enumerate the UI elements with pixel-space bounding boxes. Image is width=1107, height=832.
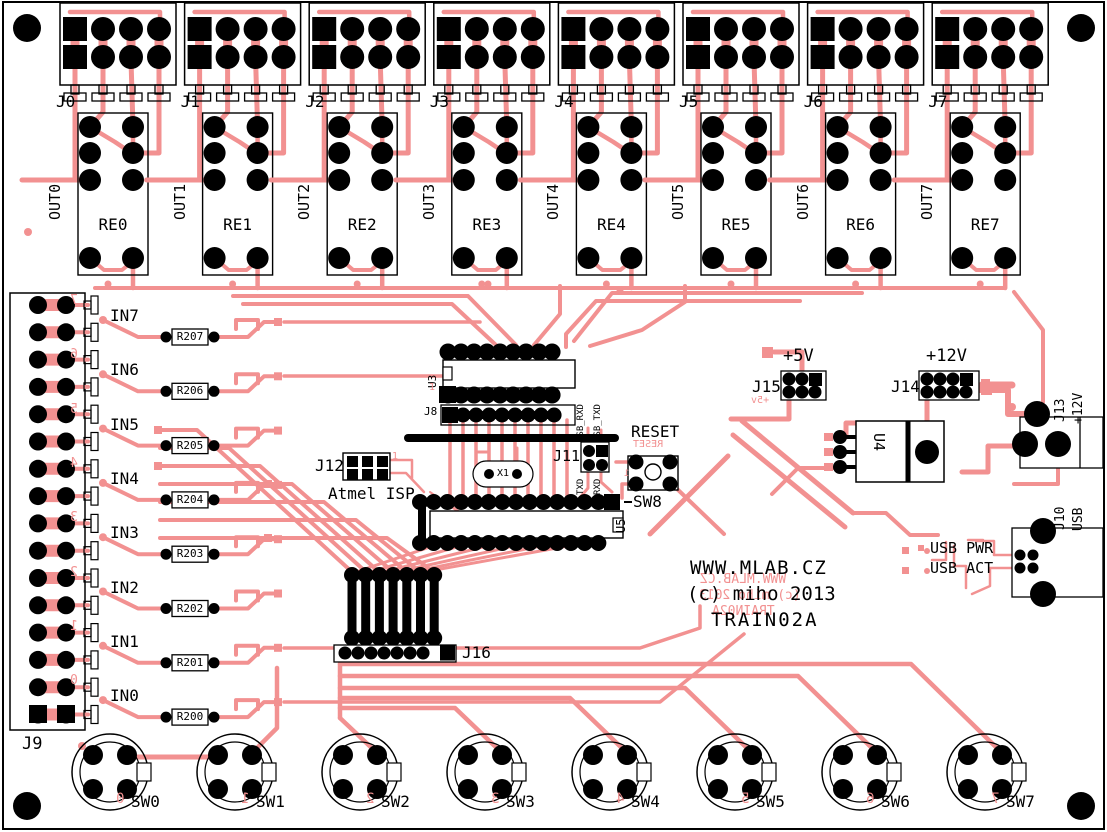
switch-digit-mirrored: 3 bbox=[491, 792, 499, 806]
connector-label: J6 bbox=[804, 94, 823, 110]
input-digit-mirrored: 7 bbox=[70, 294, 78, 307]
input-digit-mirrored: 0 bbox=[70, 674, 78, 687]
pcb-board: J0 OUT0 RE0 J1 OUT1 RE1 J2 OUT2 RE2 J3 O… bbox=[0, 0, 1107, 832]
title-url: WWW.MLAB.CZ bbox=[690, 559, 827, 578]
out-label: OUT7 bbox=[920, 146, 935, 220]
relay-label: RE7 bbox=[950, 217, 1020, 233]
relay-label: RE3 bbox=[452, 217, 522, 233]
out-label: OUT2 bbox=[297, 146, 312, 220]
out-label: OUT1 bbox=[173, 146, 188, 220]
resistor-label: R207 bbox=[172, 331, 208, 342]
switch-label: SW5 bbox=[756, 794, 785, 810]
switch-digit-mirrored: 5 bbox=[741, 792, 749, 806]
switch-label: SW7 bbox=[1006, 794, 1035, 810]
resistor-label: R205 bbox=[172, 440, 208, 451]
switch-label: SW6 bbox=[881, 794, 910, 810]
relay-label: RE1 bbox=[203, 217, 273, 233]
plus5v-label: +5V bbox=[783, 348, 814, 365]
connector-label: J2 bbox=[305, 94, 324, 110]
usb-txd-label: USB_TXD bbox=[594, 388, 603, 442]
x1-label: X1 bbox=[497, 469, 509, 479]
input-label: IN6 bbox=[110, 362, 139, 378]
out-label: OUT3 bbox=[422, 146, 437, 220]
j12-isp-header bbox=[343, 453, 390, 480]
sw8-pointer-dash bbox=[624, 501, 632, 503]
relay-label: RE4 bbox=[576, 217, 646, 233]
connector-label: J1 bbox=[181, 94, 200, 110]
j15-header bbox=[781, 371, 826, 400]
input-digit-mirrored: 4 bbox=[70, 457, 78, 470]
j9-connector bbox=[10, 293, 98, 730]
input-label: IN5 bbox=[110, 417, 139, 433]
rxd-label: RXD bbox=[594, 467, 603, 495]
resistor-label: R202 bbox=[172, 603, 208, 614]
j13-voltage-label: +12V bbox=[1072, 372, 1085, 424]
sw8-pin1-marker: 1 bbox=[624, 470, 629, 479]
j16-label: J16 bbox=[462, 645, 491, 661]
atmel-isp-label: Atmel ISP bbox=[328, 486, 415, 502]
j14-label: J14 bbox=[891, 379, 920, 395]
switch-digit-mirrored: 4 bbox=[616, 792, 624, 806]
switch-label: SW0 bbox=[131, 794, 160, 810]
input-digit-mirrored: 5 bbox=[70, 403, 78, 416]
input-label: IN2 bbox=[110, 580, 139, 596]
j10-usb-connector bbox=[1012, 518, 1103, 607]
switch-digit-mirrored: 0 bbox=[116, 792, 124, 806]
u4-label: U4 bbox=[871, 433, 886, 473]
title-copyright: (c) miho 2013 bbox=[687, 585, 836, 604]
out-label: OUT6 bbox=[796, 146, 811, 220]
input-label: IN3 bbox=[110, 525, 139, 541]
input-label: IN4 bbox=[110, 471, 139, 487]
usb-pwr-label: USB PWR bbox=[930, 541, 993, 556]
relay-label: RE5 bbox=[701, 217, 771, 233]
sw8-label: SW8 bbox=[633, 494, 662, 510]
j10-label: J10 bbox=[1054, 488, 1067, 530]
resistor-label: R204 bbox=[172, 494, 208, 505]
j11-label: J11 bbox=[553, 449, 580, 464]
input-digit-mirrored: 1 bbox=[70, 620, 78, 633]
out-label: OUT0 bbox=[48, 146, 63, 220]
switch-label: SW1 bbox=[256, 794, 285, 810]
out-label: OUT4 bbox=[546, 146, 561, 220]
switch-label: SW2 bbox=[381, 794, 410, 810]
connector-label: J4 bbox=[554, 94, 573, 110]
switch-digit-mirrored: 1 bbox=[241, 792, 249, 806]
u3-pin1-marker: 1 bbox=[429, 383, 435, 393]
out-label: OUT5 bbox=[671, 146, 686, 220]
reset-label: RESET bbox=[631, 424, 679, 440]
j14-header bbox=[919, 371, 979, 400]
u3-ic bbox=[439, 352, 575, 403]
switch-digit-mirrored: 7 bbox=[991, 792, 999, 806]
connector-label: J0 bbox=[56, 94, 75, 110]
title-name: TRAIN02A bbox=[711, 611, 819, 630]
resistor-label: R203 bbox=[172, 548, 208, 559]
resistor-label: R206 bbox=[172, 385, 208, 396]
j15-label: J15 bbox=[752, 379, 781, 395]
input-label: IN0 bbox=[110, 688, 139, 704]
j16-header bbox=[334, 645, 456, 662]
resistor-label: R201 bbox=[172, 657, 208, 668]
u5-label: U5 bbox=[615, 507, 627, 533]
reset-label-mirrored: RESET bbox=[633, 440, 663, 450]
plus5v-mirrored: +5v bbox=[751, 396, 769, 406]
relay-label: RE2 bbox=[327, 217, 397, 233]
input-label: IN1 bbox=[110, 634, 139, 650]
j12-label: J12 bbox=[315, 458, 344, 474]
input-digit-mirrored: 3 bbox=[70, 511, 78, 524]
j16-jumper-bars bbox=[344, 567, 442, 646]
switch-label: SW3 bbox=[506, 794, 535, 810]
j12-pin1-marker: 1 bbox=[392, 452, 398, 462]
txd-label: TXD bbox=[577, 467, 586, 495]
sw8-reset-button bbox=[628, 455, 678, 492]
j8-label: J8 bbox=[424, 406, 437, 417]
relay-label: RE6 bbox=[826, 217, 896, 233]
input-label: IN7 bbox=[110, 308, 139, 324]
switch-digit-mirrored: 2 bbox=[366, 792, 374, 806]
input-digit-mirrored: 6 bbox=[70, 348, 78, 361]
usb-rxd-label: USB_RXD bbox=[577, 388, 586, 442]
relay-label: RE0 bbox=[78, 217, 148, 233]
j10-type-label: USB bbox=[1072, 487, 1085, 531]
plus12v-label: +12V bbox=[926, 348, 967, 365]
switch-label: SW4 bbox=[631, 794, 660, 810]
connector-label: J3 bbox=[430, 94, 449, 110]
connector-label: J7 bbox=[928, 94, 947, 110]
pcb-graphics bbox=[0, 0, 1107, 832]
j8-header bbox=[441, 405, 575, 425]
usb-act-label: USB ACT bbox=[930, 561, 993, 576]
resistor-label: R200 bbox=[172, 711, 208, 722]
u4-regulator bbox=[833, 421, 944, 482]
j9-label: J9 bbox=[22, 736, 42, 753]
j13-label: J13 bbox=[1054, 376, 1067, 422]
connector-label: J5 bbox=[679, 94, 698, 110]
switch-digit-mirrored: 6 bbox=[866, 792, 874, 806]
input-digit-mirrored: 2 bbox=[70, 566, 78, 579]
